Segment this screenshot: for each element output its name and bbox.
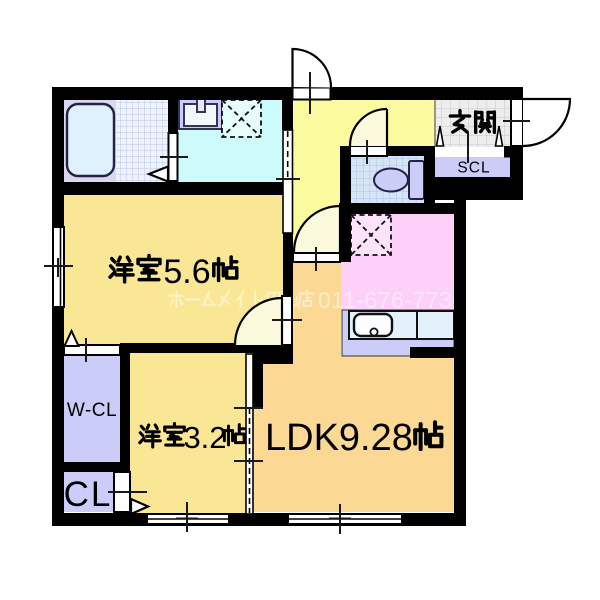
- svg-text:011-676-7736: 011-676-7736: [318, 287, 466, 313]
- svg-text:SCL: SCL: [457, 160, 490, 177]
- svg-text:3.2: 3.2: [183, 420, 226, 455]
- svg-text:W-CL: W-CL: [67, 400, 117, 421]
- svg-text:LDK9.28: LDK9.28: [265, 417, 413, 459]
- svg-text:CL: CL: [64, 475, 113, 514]
- svg-text:5.6: 5.6: [163, 253, 210, 291]
